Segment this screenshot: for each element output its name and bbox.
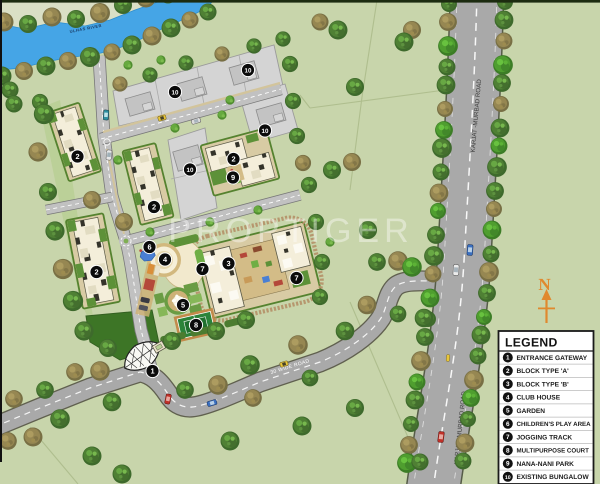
svg-text:LEGEND: LEGEND [505,336,558,350]
svg-text:NANA-NANI PARK: NANA-NANI PARK [517,461,575,468]
svg-text:9: 9 [231,173,235,182]
svg-text:2: 2 [94,267,98,276]
svg-text:7: 7 [294,273,298,282]
svg-text:BLOCK TYPE 'A': BLOCK TYPE 'A' [517,368,570,375]
svg-text:10: 10 [172,89,179,96]
svg-text:2: 2 [75,152,79,161]
svg-text:10: 10 [245,67,252,74]
svg-text:4: 4 [506,394,510,401]
svg-text:JOGGING TRACK: JOGGING TRACK [517,434,573,441]
svg-text:5: 5 [181,300,185,309]
svg-text:7: 7 [506,434,510,441]
svg-text:10: 10 [262,128,269,135]
svg-text:8: 8 [194,320,198,329]
svg-text:9: 9 [506,461,510,468]
svg-text:CLUB HOUSE: CLUB HOUSE [517,395,561,402]
svg-text:BLOCK TYPE 'B': BLOCK TYPE 'B' [517,381,570,388]
svg-text:2: 2 [152,202,156,211]
svg-text:1: 1 [506,355,510,362]
svg-text:N: N [538,275,551,294]
svg-text:1: 1 [150,366,154,375]
svg-text:6: 6 [506,421,510,428]
svg-text:3: 3 [226,259,230,268]
svg-text:CHILDREN'S PLAY AREA: CHILDREN'S PLAY AREA [517,421,592,428]
svg-text:PROPTIGER: PROPTIGER [168,212,413,250]
svg-text:EXISTING BUNGALOW: EXISTING BUNGALOW [517,474,590,481]
svg-text:7: 7 [200,264,204,273]
svg-text:MULTIPURPOSE COURT: MULTIPURPOSE COURT [517,448,590,455]
svg-text:3: 3 [506,381,510,388]
svg-text:8: 8 [506,447,510,454]
svg-text:10: 10 [187,167,194,174]
svg-text:GARDEN: GARDEN [517,408,546,415]
svg-text:6: 6 [147,242,151,251]
svg-text:5: 5 [506,408,510,415]
svg-text:2: 2 [231,154,235,163]
svg-text:ENTRANCE GATEWAY: ENTRANCE GATEWAY [517,355,588,362]
svg-text:2: 2 [506,368,510,375]
svg-text:10: 10 [505,475,511,481]
